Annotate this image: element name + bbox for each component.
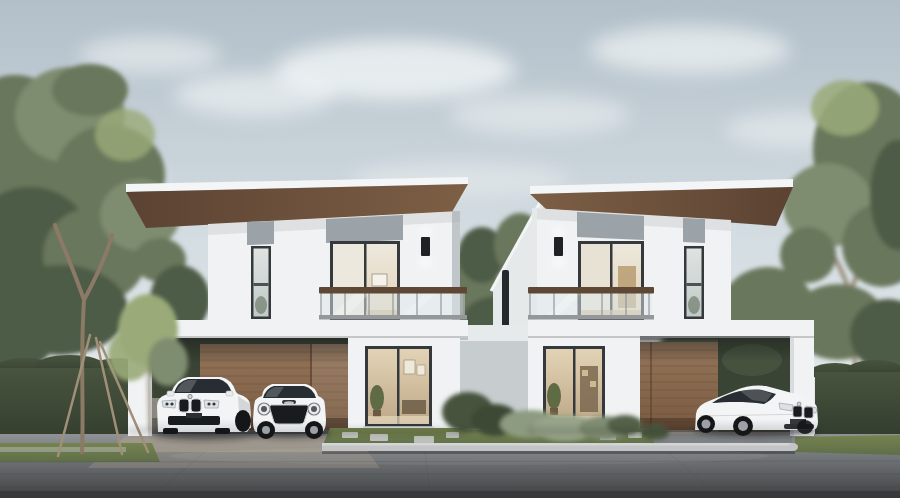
hedge-right: [810, 360, 900, 440]
accent-panel: [326, 215, 403, 243]
curb-highlight: [322, 443, 793, 446]
balcony-glass: [530, 293, 652, 317]
tree-foliage: [148, 338, 188, 386]
stepping-stone: [414, 436, 434, 443]
interior-floor: [368, 416, 429, 424]
headlight: [204, 400, 219, 408]
interior-plant: [547, 383, 561, 409]
sconce-glow-down: [551, 256, 567, 268]
interior-console: [402, 400, 426, 414]
kidney-grille: [191, 399, 201, 412]
accent-panel: [577, 212, 644, 240]
narrow-window: [684, 246, 704, 319]
headlight-lens: [170, 402, 173, 405]
cloud: [590, 26, 790, 74]
car-wheel: [797, 420, 813, 434]
mini-grille: [270, 405, 309, 424]
cloud: [175, 73, 335, 117]
scene: [0, 0, 900, 498]
interior-plant-pot: [373, 410, 381, 417]
kidney-grille: [179, 399, 189, 412]
ground-door: [365, 346, 432, 427]
wheel-rim: [262, 426, 270, 434]
headlight-lens: [261, 406, 267, 412]
wheel-rim: [702, 420, 711, 429]
tree-foliage: [95, 109, 155, 161]
narrow-window: [251, 246, 271, 319]
interior-plant: [370, 385, 384, 411]
window-transom: [254, 283, 269, 286]
tree-foliage: [108, 329, 152, 381]
balcony-bottom-rail: [528, 315, 654, 320]
bmw-badge: [797, 402, 801, 406]
interior-shelf-item: [582, 370, 588, 376]
bmw-badge: [188, 394, 192, 398]
balcony-bottom-rail: [319, 315, 467, 320]
balcony: [319, 287, 467, 320]
interior-art-frame: [404, 360, 415, 374]
tree-foliage: [811, 80, 879, 136]
tree-foliage: [52, 64, 128, 116]
lawn-right-strip: [795, 435, 900, 455]
interior-plant-pot: [550, 408, 558, 415]
license-plate: [186, 413, 202, 418]
sconce-body: [421, 237, 430, 256]
sconce-glow-down: [418, 256, 434, 268]
kidney-grille: [804, 407, 813, 418]
door-divider: [397, 349, 400, 424]
road-dark-edge: [0, 491, 900, 498]
interior-art-frame: [372, 274, 387, 286]
cloud: [450, 95, 630, 135]
window-transom: [687, 283, 702, 286]
balcony: [528, 287, 654, 320]
interior-art-frame: [417, 365, 425, 375]
wheel-rim: [738, 421, 748, 431]
interior-plant: [255, 296, 267, 314]
headlight-lens: [212, 402, 215, 405]
downpipe: [502, 270, 509, 330]
accent-panel: [247, 221, 274, 245]
balcony-top-rail: [319, 287, 467, 294]
headlight-lens: [311, 406, 317, 412]
balcony-top-rail: [528, 287, 654, 294]
curb-end: [788, 443, 798, 451]
wheel-rim: [310, 426, 318, 434]
sconce-glow-up: [419, 227, 433, 237]
rendering-canvas: [0, 0, 900, 498]
side-mirror: [167, 391, 174, 396]
mini-badge: [284, 401, 294, 405]
car-wheel: [235, 410, 251, 432]
interior-shelf-item: [590, 381, 596, 387]
sconce-body: [554, 237, 563, 256]
car-wheel: [163, 428, 178, 434]
accent-panel: [683, 218, 705, 243]
headlight-lens: [165, 402, 168, 405]
sconce-glow-up: [552, 227, 566, 237]
side-mirror: [226, 391, 233, 396]
door-divider: [573, 349, 576, 424]
slab-band: [528, 320, 814, 338]
lawn-left-strip: [0, 443, 160, 462]
headlight-lens: [207, 402, 210, 405]
kidney-grille: [793, 406, 802, 417]
carport-ceiling-shadow: [640, 336, 790, 362]
headlight: [162, 400, 176, 408]
curb-faint-left: [0, 447, 126, 452]
interior-plant: [688, 296, 700, 314]
car-wheel: [215, 428, 230, 434]
stepping-stone: [370, 434, 388, 441]
car-mini: [253, 384, 326, 439]
hedge-body: [815, 372, 900, 440]
curb-shadow: [322, 451, 795, 454]
